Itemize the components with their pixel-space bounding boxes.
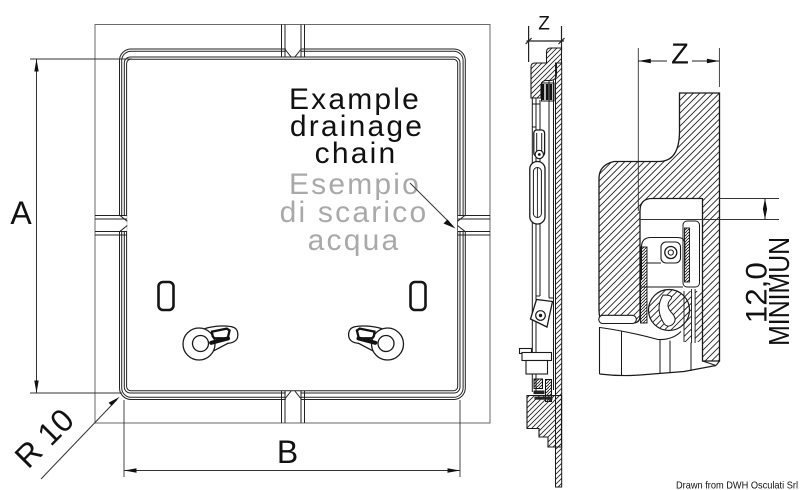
svg-text:Drawn from DWH Osculati Srl: Drawn from DWH Osculati Srl <box>676 480 798 490</box>
svg-text:acqua: acqua <box>308 224 401 257</box>
svg-text:A: A <box>10 195 32 231</box>
svg-text:B: B <box>277 434 298 470</box>
svg-text:MINIMUN: MINIMUN <box>764 237 796 346</box>
svg-text:Z: Z <box>538 14 550 35</box>
svg-text:chain: chain <box>315 137 398 170</box>
svg-text:Z: Z <box>671 39 689 71</box>
